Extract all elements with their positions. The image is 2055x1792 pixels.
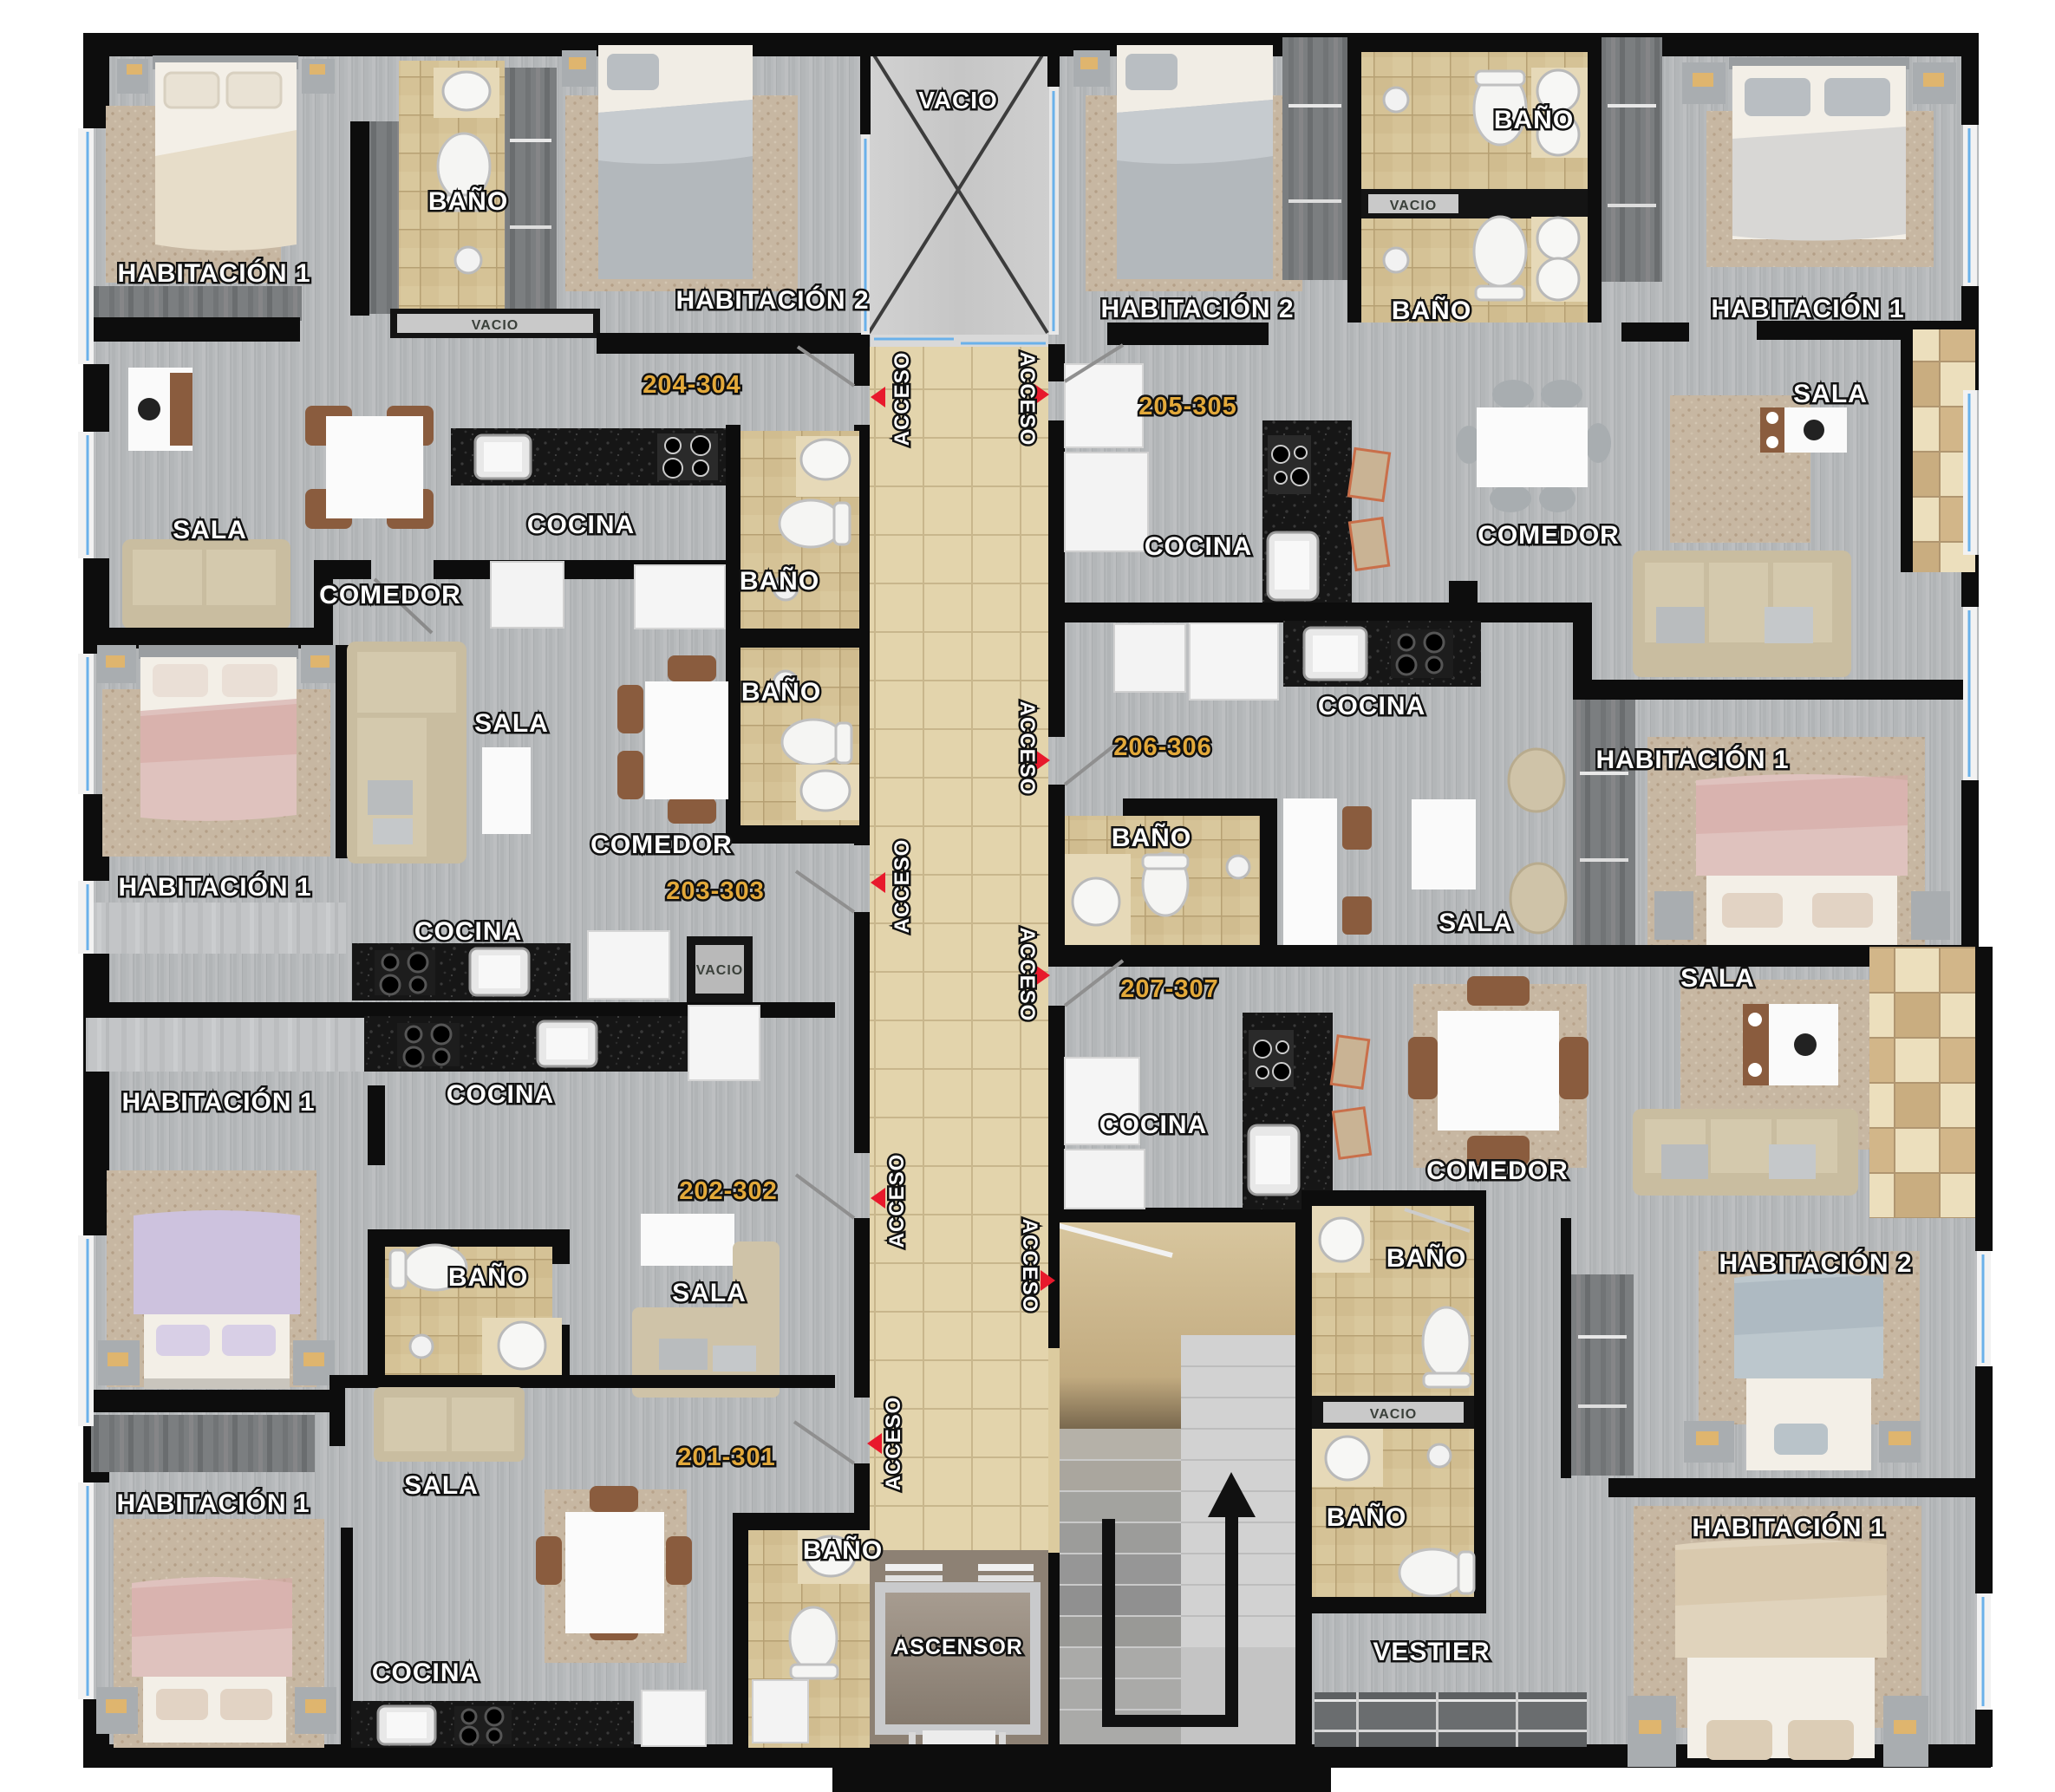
svg-text:BAÑO: BAÑO <box>448 1262 528 1292</box>
svg-text:VACIO: VACIO <box>1390 199 1437 213</box>
svg-text:ASCENSOR: ASCENSOR <box>893 1635 1023 1659</box>
svg-text:COCINA: COCINA <box>372 1658 479 1687</box>
svg-text:COCINA: COCINA <box>1318 692 1425 720</box>
svg-text:HABITACIÓN 1: HABITACIÓN 1 <box>117 258 310 288</box>
svg-text:ACCESO: ACCESO <box>890 352 914 446</box>
svg-text:SALA: SALA <box>672 1279 747 1307</box>
svg-text:ACCESO: ACCESO <box>1015 352 1039 446</box>
svg-text:SALA: SALA <box>474 709 549 738</box>
svg-text:203-303: 203-303 <box>666 877 764 905</box>
svg-text:HABITACIÓN 1: HABITACIÓN 1 <box>121 1087 315 1117</box>
svg-text:202-302: 202-302 <box>679 1177 777 1205</box>
svg-text:204-304: 204-304 <box>643 371 740 399</box>
svg-text:HABITACIÓN 1: HABITACIÓN 1 <box>118 872 311 902</box>
svg-text:ACCESO: ACCESO <box>1018 1219 1041 1313</box>
svg-text:COCINA: COCINA <box>1099 1111 1207 1139</box>
svg-text:VACIO: VACIO <box>472 318 519 333</box>
svg-text:COMEDOR: COMEDOR <box>319 581 461 609</box>
svg-text:HABITACIÓN 2: HABITACIÓN 2 <box>1100 294 1294 323</box>
svg-text:SALA: SALA <box>1680 964 1755 993</box>
svg-text:BAÑO: BAÑO <box>1392 296 1471 325</box>
svg-text:COMEDOR: COMEDOR <box>590 831 733 859</box>
svg-text:VACIO: VACIO <box>1370 1407 1417 1422</box>
svg-text:BAÑO: BAÑO <box>1327 1502 1406 1532</box>
svg-text:HABITACIÓN 2: HABITACIÓN 2 <box>1719 1248 1912 1278</box>
svg-text:ACCESO: ACCESO <box>1015 701 1039 796</box>
svg-text:SALA: SALA <box>1438 909 1513 937</box>
svg-text:BAÑO: BAÑO <box>741 677 821 707</box>
svg-text:BAÑO: BAÑO <box>803 1535 883 1565</box>
svg-text:ACCESO: ACCESO <box>882 1397 905 1491</box>
svg-text:COMEDOR: COMEDOR <box>1426 1157 1569 1185</box>
svg-text:VACIO: VACIO <box>918 87 998 114</box>
svg-text:HABITACIÓN 2: HABITACIÓN 2 <box>675 285 869 315</box>
svg-text:BAÑO: BAÑO <box>1386 1243 1466 1273</box>
svg-text:ACCESO: ACCESO <box>1015 928 1039 1022</box>
svg-text:BAÑO: BAÑO <box>428 186 508 216</box>
svg-text:BAÑO: BAÑO <box>1112 823 1191 852</box>
svg-text:COCINA: COCINA <box>527 511 635 539</box>
svg-text:HABITACIÓN 1: HABITACIÓN 1 <box>1595 745 1789 774</box>
svg-text:ACCESO: ACCESO <box>890 839 914 934</box>
svg-text:SALA: SALA <box>1793 380 1868 408</box>
svg-text:VESTIER: VESTIER <box>1373 1638 1490 1666</box>
svg-text:COCINA: COCINA <box>414 917 522 946</box>
svg-text:COMEDOR: COMEDOR <box>1478 521 1620 550</box>
svg-text:205-305: 205-305 <box>1138 393 1236 420</box>
svg-text:VACIO: VACIO <box>696 963 743 978</box>
svg-text:ACCESO: ACCESO <box>885 1154 909 1248</box>
svg-text:HABITACIÓN 1: HABITACIÓN 1 <box>116 1489 310 1518</box>
svg-text:BAÑO: BAÑO <box>1494 105 1574 134</box>
svg-text:COCINA: COCINA <box>1145 532 1252 561</box>
svg-text:206-306: 206-306 <box>1113 733 1211 761</box>
svg-text:HABITACIÓN 1: HABITACIÓN 1 <box>1692 1513 1885 1542</box>
svg-text:COCINA: COCINA <box>447 1080 554 1109</box>
svg-text:207-307: 207-307 <box>1120 975 1218 1003</box>
svg-text:SALA: SALA <box>173 516 247 544</box>
svg-text:SALA: SALA <box>404 1471 479 1500</box>
svg-text:201-301: 201-301 <box>677 1443 775 1471</box>
svg-text:BAÑO: BAÑO <box>740 566 819 596</box>
svg-text:HABITACIÓN 1: HABITACIÓN 1 <box>1711 294 1904 323</box>
